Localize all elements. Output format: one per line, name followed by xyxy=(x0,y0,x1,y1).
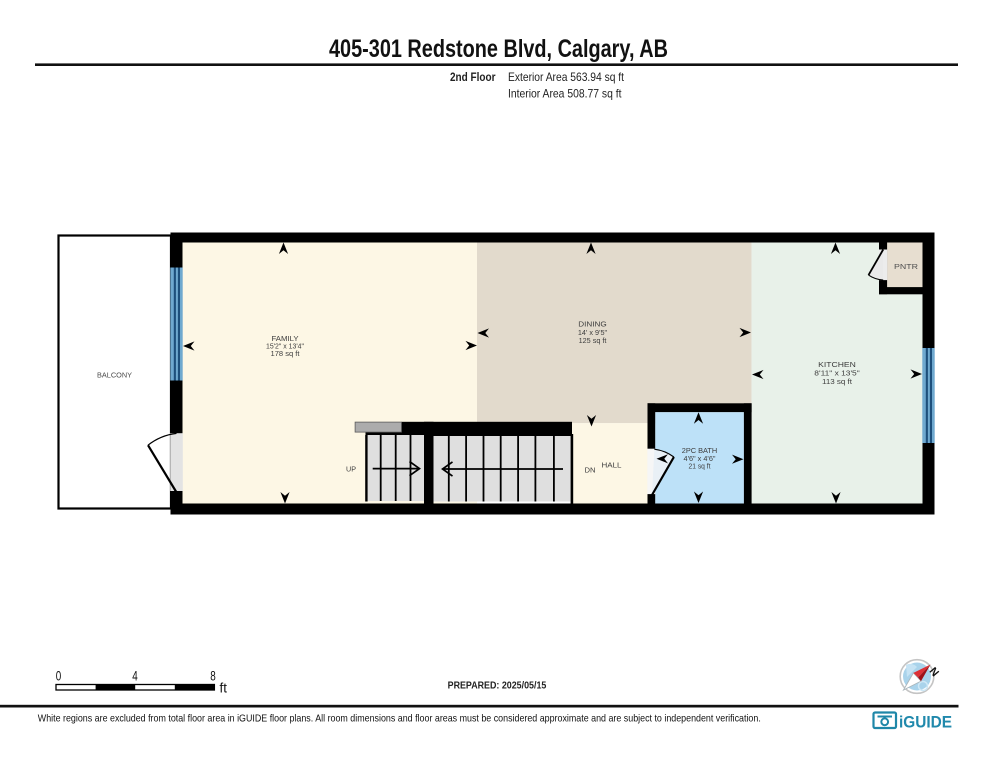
svg-text:ft: ft xyxy=(220,681,228,696)
svg-text:125 sq ft: 125 sq ft xyxy=(579,336,607,345)
svg-text:Exterior Area 563.94 sq ft: Exterior Area 563.94 sq ft xyxy=(508,70,625,84)
svg-text:4: 4 xyxy=(132,669,138,684)
svg-text:UP: UP xyxy=(346,465,356,474)
svg-text:PREPARED: 2025/05/15: PREPARED: 2025/05/15 xyxy=(448,681,547,692)
svg-text:DN: DN xyxy=(585,466,596,475)
svg-text:0: 0 xyxy=(56,669,62,684)
svg-text:iGUIDE: iGUIDE xyxy=(899,714,952,732)
svg-text:PNTR: PNTR xyxy=(894,262,919,271)
svg-text:113 sq ft: 113 sq ft xyxy=(822,377,852,386)
svg-text:178 sq ft: 178 sq ft xyxy=(271,349,300,358)
svg-text:2nd Floor: 2nd Floor xyxy=(450,70,496,84)
svg-text:Interior Area 508.77 sq ft: Interior Area 508.77 sq ft xyxy=(508,86,622,100)
svg-text:White regions are excluded fro: White regions are excluded from total fl… xyxy=(38,713,761,724)
svg-text:8: 8 xyxy=(210,669,216,684)
svg-text:BALCONY: BALCONY xyxy=(97,371,132,380)
svg-text:405-301 Redstone Blvd, Calgary: 405-301 Redstone Blvd, Calgary, AB xyxy=(329,35,668,63)
svg-text:21 sq ft: 21 sq ft xyxy=(689,462,711,471)
svg-text:HALL: HALL xyxy=(602,461,623,470)
